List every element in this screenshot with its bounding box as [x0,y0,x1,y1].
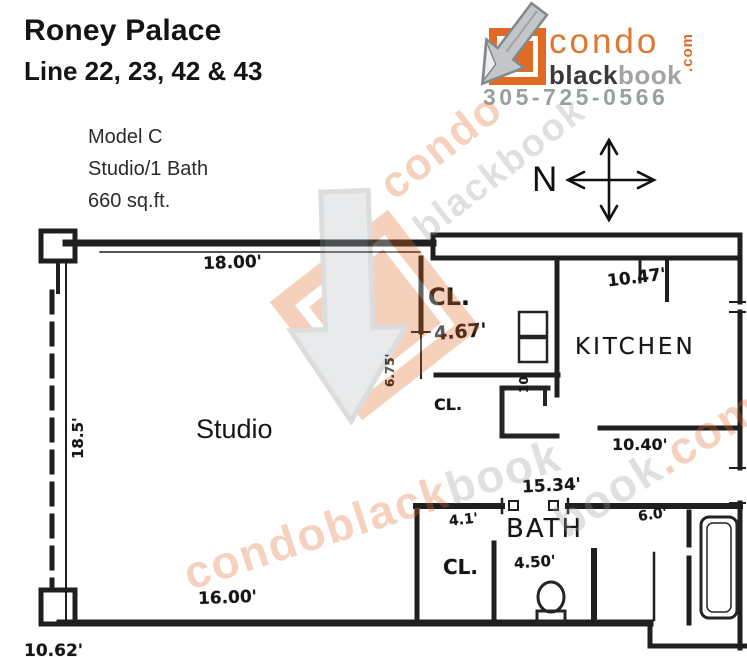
room-label-studio: Studio [196,414,273,445]
dim-closet-width: 4.67' [433,319,487,345]
room-label-closet-bath: CL. [443,555,478,579]
room-label-bath: BATH [506,514,583,544]
room-label-kitchen: KITCHEN [575,334,696,360]
toilet-icon [538,582,564,612]
tub-inner-icon [707,523,731,612]
floorplan-walls [0,0,747,657]
floorplan-page: Roney Palace Line 22, 23, 42 & 43 Model … [0,0,747,657]
room-label-closet-upper: CL. [428,283,470,311]
room-label-closet-hall: CL. [434,395,462,414]
dim-kitchen-width: 10.40' [612,435,668,454]
dim-bath-closet: 4.1' [448,511,479,530]
dim-kitchen-entry: 10 [517,369,531,393]
closet-shelf-fixture [519,312,547,336]
dim-entry-bottom: 10.62' [24,641,83,657]
dim-studio-left: 18.5' [69,399,87,459]
closet-shelf-fixture [519,338,547,362]
dim-bath-core: 4.50' [513,552,556,573]
dim-studio-top: 18.00' [203,252,263,274]
hall-closet-wall [502,388,557,436]
dim-closet-depth: 6.75' [383,331,397,387]
dim-bath-span: 15.34' [522,474,582,497]
dim-studio-bottom: 16.00' [198,587,258,609]
